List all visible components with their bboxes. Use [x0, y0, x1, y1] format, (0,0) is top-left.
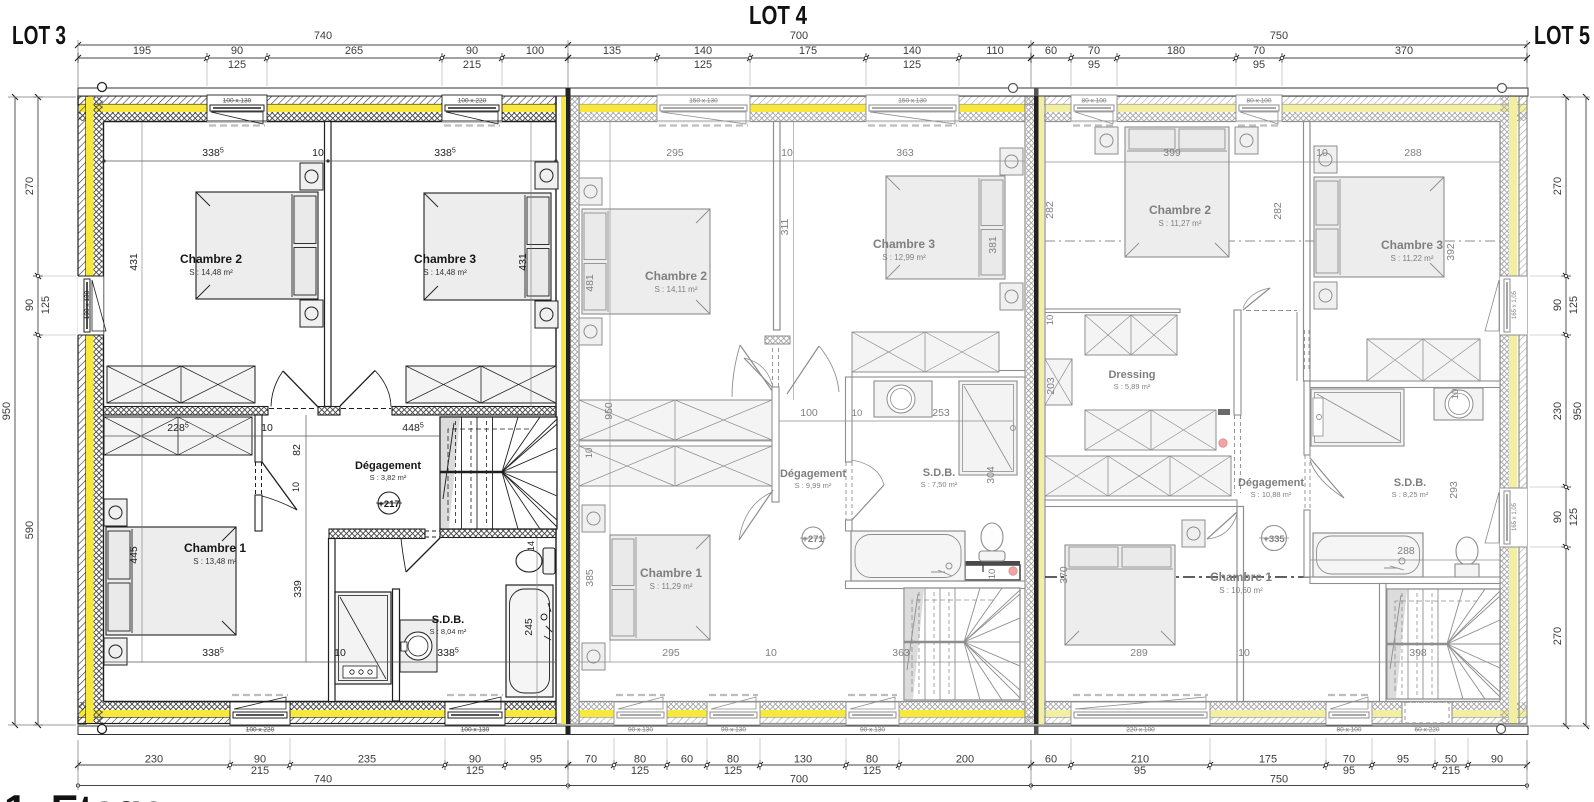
svg-text:60: 60: [1045, 45, 1057, 57]
svg-text:80: 80: [634, 754, 646, 766]
svg-text:S : 12,99 m²: S : 12,99 m²: [882, 253, 926, 262]
svg-text:740: 740: [314, 30, 332, 42]
svg-text:150 x 130: 150 x 130: [898, 98, 927, 105]
svg-text:50: 50: [1445, 754, 1457, 766]
svg-text:370: 370: [1395, 45, 1413, 57]
svg-text:339: 339: [292, 580, 304, 598]
svg-text:100: 100: [800, 407, 818, 419]
svg-text:Chambre 2: Chambre 2: [180, 252, 242, 266]
svg-text:90 x 130: 90 x 130: [721, 727, 746, 734]
svg-text:130: 130: [794, 754, 812, 766]
svg-text:S : 11,22 m²: S : 11,22 m²: [1391, 254, 1434, 263]
svg-text:215: 215: [1442, 765, 1460, 777]
svg-text:200: 200: [956, 754, 974, 766]
svg-text:70: 70: [1088, 45, 1100, 57]
svg-text:Chambre 3: Chambre 3: [1381, 238, 1443, 252]
svg-text:90: 90: [466, 45, 478, 57]
svg-text:385: 385: [584, 569, 596, 587]
svg-text:Chambre 1: Chambre 1: [640, 566, 702, 580]
svg-text:+335: +335: [1263, 534, 1285, 545]
svg-text:10: 10: [1238, 647, 1250, 659]
svg-text:175: 175: [1259, 754, 1277, 766]
svg-text:295: 295: [662, 647, 680, 659]
svg-text:10: 10: [312, 147, 324, 159]
svg-text:700: 700: [790, 30, 808, 42]
svg-text:95: 95: [1343, 765, 1355, 777]
svg-text:235: 235: [358, 754, 376, 766]
svg-text:950: 950: [1572, 402, 1584, 420]
svg-text:S : 10,60 m²: S : 10,60 m²: [1219, 586, 1263, 595]
svg-text:LOT 4: LOT 4: [749, 0, 807, 30]
svg-text:140: 140: [903, 45, 921, 57]
svg-text:S.D.B.: S.D.B.: [1394, 477, 1426, 489]
svg-text:Chambre 2: Chambre 2: [645, 269, 707, 283]
svg-text:95: 95: [1088, 59, 1100, 71]
svg-text:100 x 130: 100 x 130: [84, 290, 91, 319]
svg-text:Chambre 1: Chambre 1: [184, 541, 246, 555]
svg-text:282: 282: [1044, 201, 1056, 219]
svg-text:100 x 130: 100 x 130: [461, 727, 490, 734]
svg-text:LOT 3: LOT 3: [12, 20, 66, 50]
svg-text:Dégagement: Dégagement: [780, 468, 846, 480]
svg-text:215: 215: [251, 765, 269, 777]
svg-text:70: 70: [585, 754, 597, 766]
svg-text:590: 590: [24, 521, 36, 539]
svg-text:370: 370: [1058, 566, 1070, 584]
svg-text:431: 431: [128, 253, 140, 271]
svg-text:125: 125: [863, 765, 881, 777]
svg-text:10: 10: [765, 647, 777, 659]
svg-text:95: 95: [1397, 754, 1409, 766]
svg-text:950: 950: [1, 402, 13, 420]
svg-text:S : 7,50 m²: S : 7,50 m²: [921, 480, 958, 489]
svg-text:S : 9,99 m²: S : 9,99 m²: [795, 481, 832, 490]
svg-text:60 x 220: 60 x 220: [1415, 727, 1440, 734]
svg-text:60: 60: [681, 754, 693, 766]
svg-text:+271: +271: [802, 534, 824, 545]
svg-text:82: 82: [291, 444, 303, 456]
svg-text:245: 245: [523, 618, 535, 636]
svg-text:Chambre 3: Chambre 3: [873, 237, 935, 251]
svg-text:10: 10: [1316, 147, 1328, 159]
svg-text:Dégagement: Dégagement: [355, 460, 421, 472]
svg-text:398: 398: [1409, 647, 1427, 659]
svg-text:125: 125: [631, 765, 649, 777]
svg-text:95: 95: [1134, 765, 1146, 777]
svg-text:180: 180: [1167, 45, 1185, 57]
svg-text:90: 90: [231, 45, 243, 57]
svg-text:392: 392: [1445, 243, 1457, 261]
svg-text:60: 60: [1045, 754, 1057, 766]
svg-text:70: 70: [1343, 754, 1355, 766]
svg-text:Chambre 1: Chambre 1: [1210, 570, 1272, 584]
svg-text:293: 293: [1448, 481, 1460, 499]
svg-text:140: 140: [694, 45, 712, 57]
svg-text:S : 8,25 m²: S : 8,25 m²: [1392, 490, 1429, 499]
svg-text:90: 90: [1491, 754, 1503, 766]
svg-text:10: 10: [1045, 315, 1056, 326]
svg-text:481: 481: [584, 274, 596, 292]
svg-text:100 x 220: 100 x 220: [246, 727, 275, 734]
svg-text:270: 270: [1552, 177, 1564, 195]
svg-text:125: 125: [1568, 296, 1580, 314]
svg-text:289: 289: [1130, 647, 1148, 659]
svg-text:750: 750: [1270, 30, 1288, 42]
svg-text:270: 270: [1552, 627, 1564, 645]
svg-text:S : 10,88 m²: S : 10,88 m²: [1251, 490, 1292, 499]
svg-text:110: 110: [986, 45, 1004, 57]
svg-text:80 x 100: 80 x 100: [1082, 98, 1107, 105]
svg-text:270: 270: [24, 177, 36, 195]
svg-text:90 x 130: 90 x 130: [628, 727, 653, 734]
svg-text:90 x 130: 90 x 130: [860, 727, 885, 734]
svg-text:14: 14: [526, 541, 536, 551]
svg-text:195: 195: [133, 45, 151, 57]
svg-text:10: 10: [1450, 389, 1461, 400]
svg-text:S : 14,48 m²: S : 14,48 m²: [189, 268, 233, 277]
svg-text:Dégagement: Dégagement: [1238, 477, 1304, 489]
svg-text:740: 740: [314, 774, 332, 786]
svg-text:80 x 100: 80 x 100: [1247, 98, 1272, 105]
svg-text:S.D.B.: S.D.B.: [923, 467, 955, 479]
svg-text:203: 203: [1045, 377, 1057, 395]
svg-text:125: 125: [694, 59, 712, 71]
svg-text:165 x 1,05: 165 x 1,05: [1512, 502, 1518, 531]
svg-text:S : 13,48 m²: S : 13,48 m²: [193, 557, 237, 566]
svg-text:295: 295: [666, 147, 684, 159]
svg-text:10: 10: [261, 422, 273, 434]
svg-text:215: 215: [463, 59, 481, 71]
svg-text:431: 431: [517, 253, 529, 271]
svg-text:80 x 100: 80 x 100: [1337, 727, 1362, 734]
svg-text:90: 90: [1552, 299, 1564, 311]
svg-text:399: 399: [1163, 147, 1181, 159]
svg-text:Dressing: Dressing: [1108, 369, 1155, 381]
svg-text:230: 230: [145, 754, 163, 766]
svg-text:288: 288: [1397, 545, 1415, 557]
svg-text:175: 175: [799, 45, 817, 57]
svg-text:282: 282: [1272, 202, 1284, 220]
svg-text:S : 14,11 m²: S : 14,11 m²: [655, 285, 698, 294]
svg-text:S : 11,29 m²: S : 11,29 m²: [650, 582, 693, 591]
svg-text:LOT 5: LOT 5: [1534, 20, 1590, 50]
svg-text:304: 304: [985, 466, 997, 484]
svg-text:95: 95: [1253, 59, 1265, 71]
svg-text:700: 700: [790, 774, 808, 786]
svg-text:100: 100: [526, 45, 544, 57]
svg-text:90: 90: [1552, 511, 1564, 523]
svg-text:Chambre 2: Chambre 2: [1149, 203, 1211, 217]
svg-text:S : 8,04 m²: S : 8,04 m²: [430, 627, 467, 636]
svg-text:125: 125: [40, 296, 52, 314]
svg-text:Chambre 3: Chambre 3: [414, 252, 476, 266]
svg-text:95: 95: [530, 754, 542, 766]
svg-text:S.D.B.: S.D.B.: [432, 614, 464, 626]
svg-text:S : 5,89 m²: S : 5,89 m²: [1114, 382, 1151, 391]
svg-text:230: 230: [1552, 402, 1564, 420]
svg-text:S : 11,27 m²: S : 11,27 m²: [1159, 219, 1202, 228]
svg-text:165 x 1,05: 165 x 1,05: [1512, 290, 1518, 319]
svg-text:220 x 100: 220 x 100: [1126, 727, 1155, 734]
svg-text:253: 253: [932, 407, 950, 419]
svg-text:80: 80: [727, 754, 739, 766]
svg-text:288: 288: [1404, 147, 1422, 159]
svg-text:90: 90: [254, 754, 266, 766]
svg-text:100 x 220: 100 x 220: [458, 98, 487, 105]
svg-text:10: 10: [334, 647, 346, 659]
svg-text:10: 10: [987, 569, 998, 580]
svg-text:445: 445: [128, 546, 140, 564]
svg-text:125: 125: [228, 59, 246, 71]
svg-text:100 x 130: 100 x 130: [223, 98, 252, 105]
svg-text:311: 311: [779, 218, 791, 235]
svg-text:70: 70: [1253, 45, 1265, 57]
svg-text:950: 950: [603, 402, 615, 420]
svg-text:90: 90: [24, 299, 36, 311]
svg-text:750: 750: [1270, 774, 1288, 786]
svg-text:10: 10: [291, 482, 301, 492]
svg-text:265: 265: [345, 45, 363, 57]
svg-text:135: 135: [603, 45, 621, 57]
svg-text:1. Etage: 1. Etage: [4, 786, 165, 802]
svg-text:150 x 130: 150 x 130: [689, 98, 718, 105]
svg-text:10: 10: [584, 448, 595, 459]
svg-text:10: 10: [852, 408, 863, 419]
svg-text:363: 363: [892, 647, 910, 659]
svg-text:125: 125: [724, 765, 742, 777]
svg-text:90: 90: [469, 754, 481, 766]
svg-text:80: 80: [866, 754, 878, 766]
svg-text:363: 363: [896, 147, 914, 159]
svg-text:381: 381: [987, 236, 999, 254]
svg-text:125: 125: [466, 765, 484, 777]
svg-text:S : 14,48 m²: S : 14,48 m²: [423, 268, 467, 277]
svg-text:+217: +217: [378, 499, 399, 510]
svg-text:125: 125: [1568, 508, 1580, 526]
svg-text:125: 125: [903, 59, 921, 71]
svg-text:210: 210: [1131, 754, 1149, 766]
svg-text:10: 10: [781, 147, 793, 159]
svg-text:S : 3,82 m²: S : 3,82 m²: [370, 473, 407, 482]
